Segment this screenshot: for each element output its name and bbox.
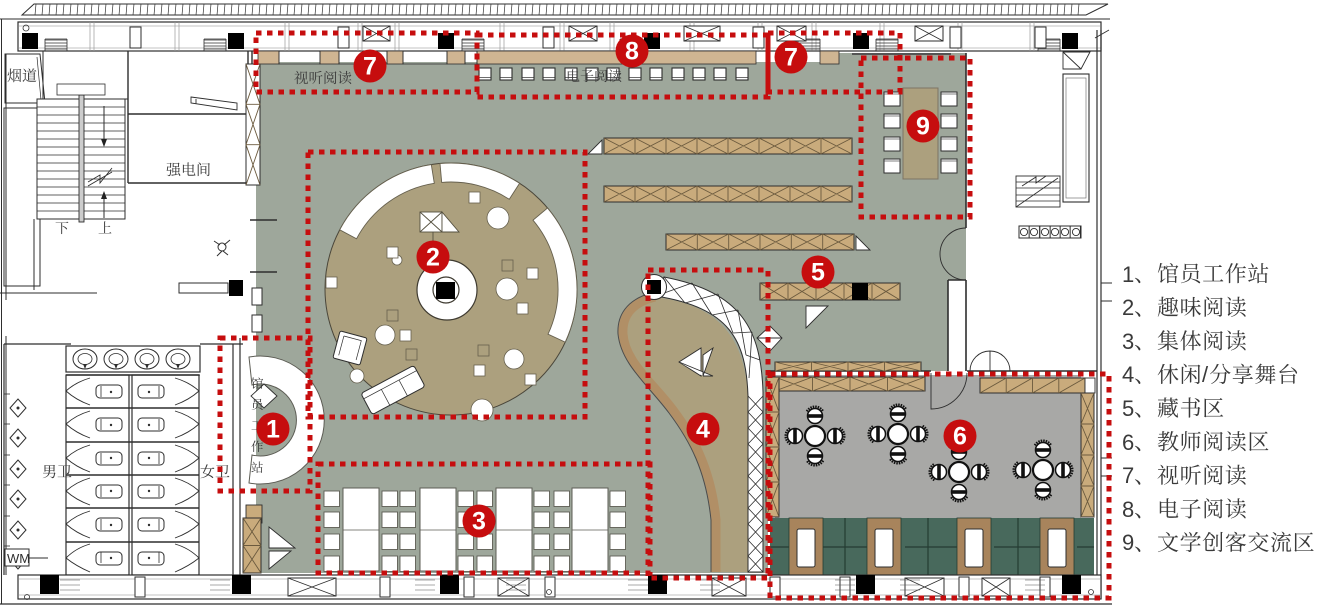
svg-text:3: 3	[1122, 329, 1134, 354]
svg-text:1: 1	[1122, 262, 1134, 287]
svg-text:6: 6	[953, 423, 967, 451]
svg-text:7: 7	[363, 53, 377, 81]
svg-text:6: 6	[1122, 430, 1134, 455]
svg-text:8: 8	[1122, 497, 1134, 522]
svg-text:1: 1	[266, 416, 280, 444]
svg-text:4: 4	[1122, 362, 1134, 387]
svg-text:5: 5	[811, 259, 825, 287]
svg-text:9: 9	[916, 113, 930, 141]
svg-text:/: /	[1202, 362, 1209, 387]
svg-text:8: 8	[625, 38, 639, 66]
svg-text:2: 2	[1122, 295, 1134, 320]
svg-text:2: 2	[426, 244, 440, 272]
svg-text:9: 9	[1122, 530, 1134, 555]
svg-text:3: 3	[472, 508, 486, 536]
svg-text:4: 4	[696, 416, 710, 444]
svg-text:WM: WM	[7, 551, 30, 566]
svg-text:7: 7	[1122, 463, 1134, 488]
svg-text:7: 7	[784, 44, 798, 72]
svg-text:5: 5	[1122, 396, 1134, 421]
